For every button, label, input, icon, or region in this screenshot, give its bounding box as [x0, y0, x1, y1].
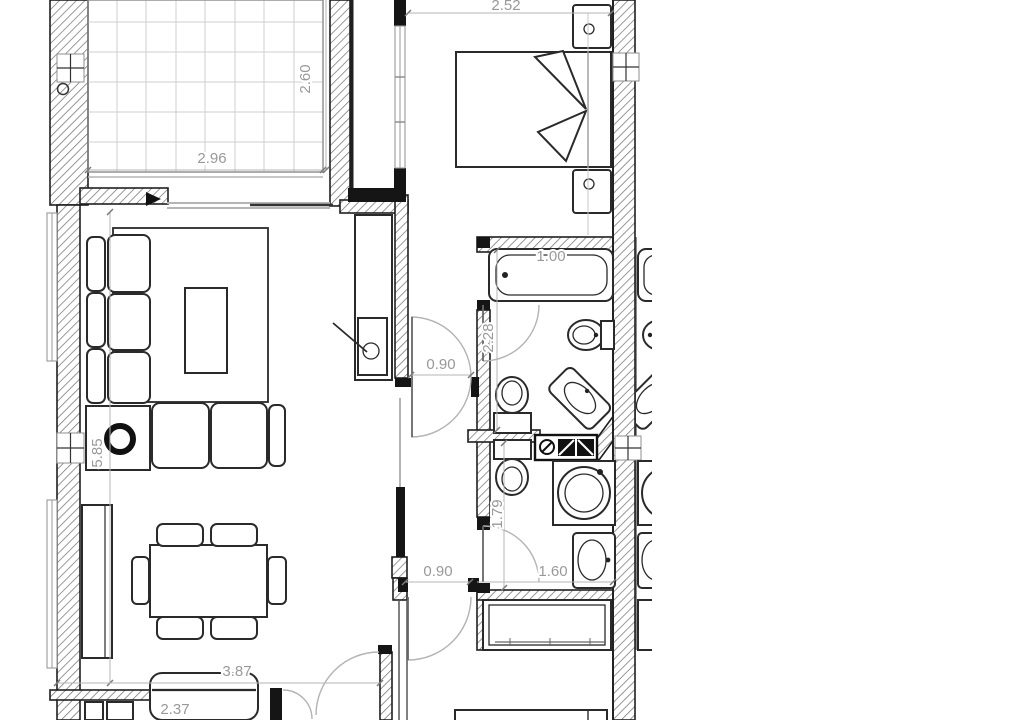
- dining-chair: [157, 617, 203, 639]
- dim-living-length: 5.85: [89, 438, 106, 467]
- dining-chair: [211, 524, 257, 546]
- dim-bathroom-door: 0.90: [426, 356, 455, 373]
- living-hall-door: [411, 317, 471, 437]
- cabinet: [85, 702, 103, 720]
- neighbor-sink: [638, 533, 680, 588]
- dining-table: [150, 545, 267, 617]
- bedroom-window-icon: [395, 26, 405, 168]
- shaft-bottom-wall: [348, 188, 406, 202]
- neighbor-bathtub: [638, 249, 688, 301]
- tv: [358, 318, 387, 375]
- dim-bathtub-length: 1.00: [536, 248, 565, 265]
- wall-hung-toilet: [568, 320, 614, 350]
- bottom-center-wall: [380, 652, 392, 720]
- dim-wc-width: 1.60: [538, 563, 567, 580]
- toilet: [494, 377, 531, 433]
- wc-door: [483, 526, 539, 582]
- left-window: [47, 500, 57, 668]
- column-icon: [613, 53, 639, 81]
- balcony: [88, 0, 333, 208]
- jamb: [378, 645, 392, 654]
- cabinet: [107, 702, 133, 720]
- bottom-left-wall: [50, 690, 150, 700]
- end-seat: [132, 557, 149, 604]
- dim-wc-depth: 1.79: [489, 499, 506, 528]
- neighbor-wardrobe: [638, 600, 688, 650]
- jamb: [471, 377, 479, 397]
- dim-bathroom-depth: 2.28: [480, 323, 497, 352]
- corner-basin: [547, 365, 613, 431]
- balcony-left-wall: [50, 0, 88, 205]
- living-hall-wall: [395, 195, 408, 378]
- window-jamb: [394, 0, 406, 26]
- jamb: [395, 378, 411, 387]
- nightstand: [573, 170, 611, 213]
- wardrobe: [483, 600, 611, 650]
- dim-hall-door: 0.90: [423, 563, 452, 580]
- jamb: [477, 237, 490, 248]
- floor-plan-page: 2.52 2.60 2.96 1.00 2.28 0.90 5.85 1.79 …: [0, 0, 1024, 720]
- nightstand: [573, 5, 611, 48]
- tv-unit: [333, 215, 392, 380]
- dim-living-width: 3.87: [222, 663, 251, 680]
- drain-icon: [502, 272, 508, 278]
- faucet-icon: [606, 558, 611, 563]
- sliding-door: [146, 192, 333, 208]
- coffee-table: [185, 288, 227, 373]
- dim-kitchen-width: 2.37: [160, 701, 189, 718]
- sideboard: [82, 505, 112, 658]
- left-window: [47, 213, 57, 361]
- bottom-room-door: [408, 597, 471, 660]
- sofa-armrest: [269, 405, 285, 466]
- floor-lamp-icon: [107, 426, 133, 452]
- partition-solid: [396, 487, 405, 557]
- partition-foot: [392, 557, 407, 578]
- window-jamb: [394, 168, 406, 190]
- living-room: [86, 215, 392, 470]
- floor-plan-svg: 2.52 2.60 2.96 1.00 2.28 0.90 5.85 1.79 …: [0, 0, 1024, 720]
- dim-bedroom-width: 2.52: [491, 0, 520, 14]
- utility-counter: [535, 435, 597, 460]
- bathroom-upper: [489, 249, 614, 433]
- toilet: [494, 440, 531, 495]
- partial-bed: [455, 710, 607, 720]
- washbasin: [573, 533, 615, 588]
- kitchen-doors: [283, 652, 379, 719]
- dining-chair: [157, 524, 203, 546]
- washing-machine: [553, 461, 615, 525]
- right-outer-wall: [613, 0, 635, 720]
- balcony-right-wall: [330, 0, 350, 206]
- dining-chair: [211, 617, 257, 639]
- end-seat: [268, 557, 286, 604]
- wc-south-wall: [477, 590, 615, 600]
- jamb: [468, 578, 479, 592]
- column-icon: [57, 433, 84, 463]
- dim-balcony-depth: 2.60: [297, 64, 314, 93]
- dim-balcony-width: 2.96: [197, 150, 226, 167]
- column-icon: [615, 436, 641, 460]
- dining-area: [82, 505, 286, 720]
- jamb: [270, 688, 282, 720]
